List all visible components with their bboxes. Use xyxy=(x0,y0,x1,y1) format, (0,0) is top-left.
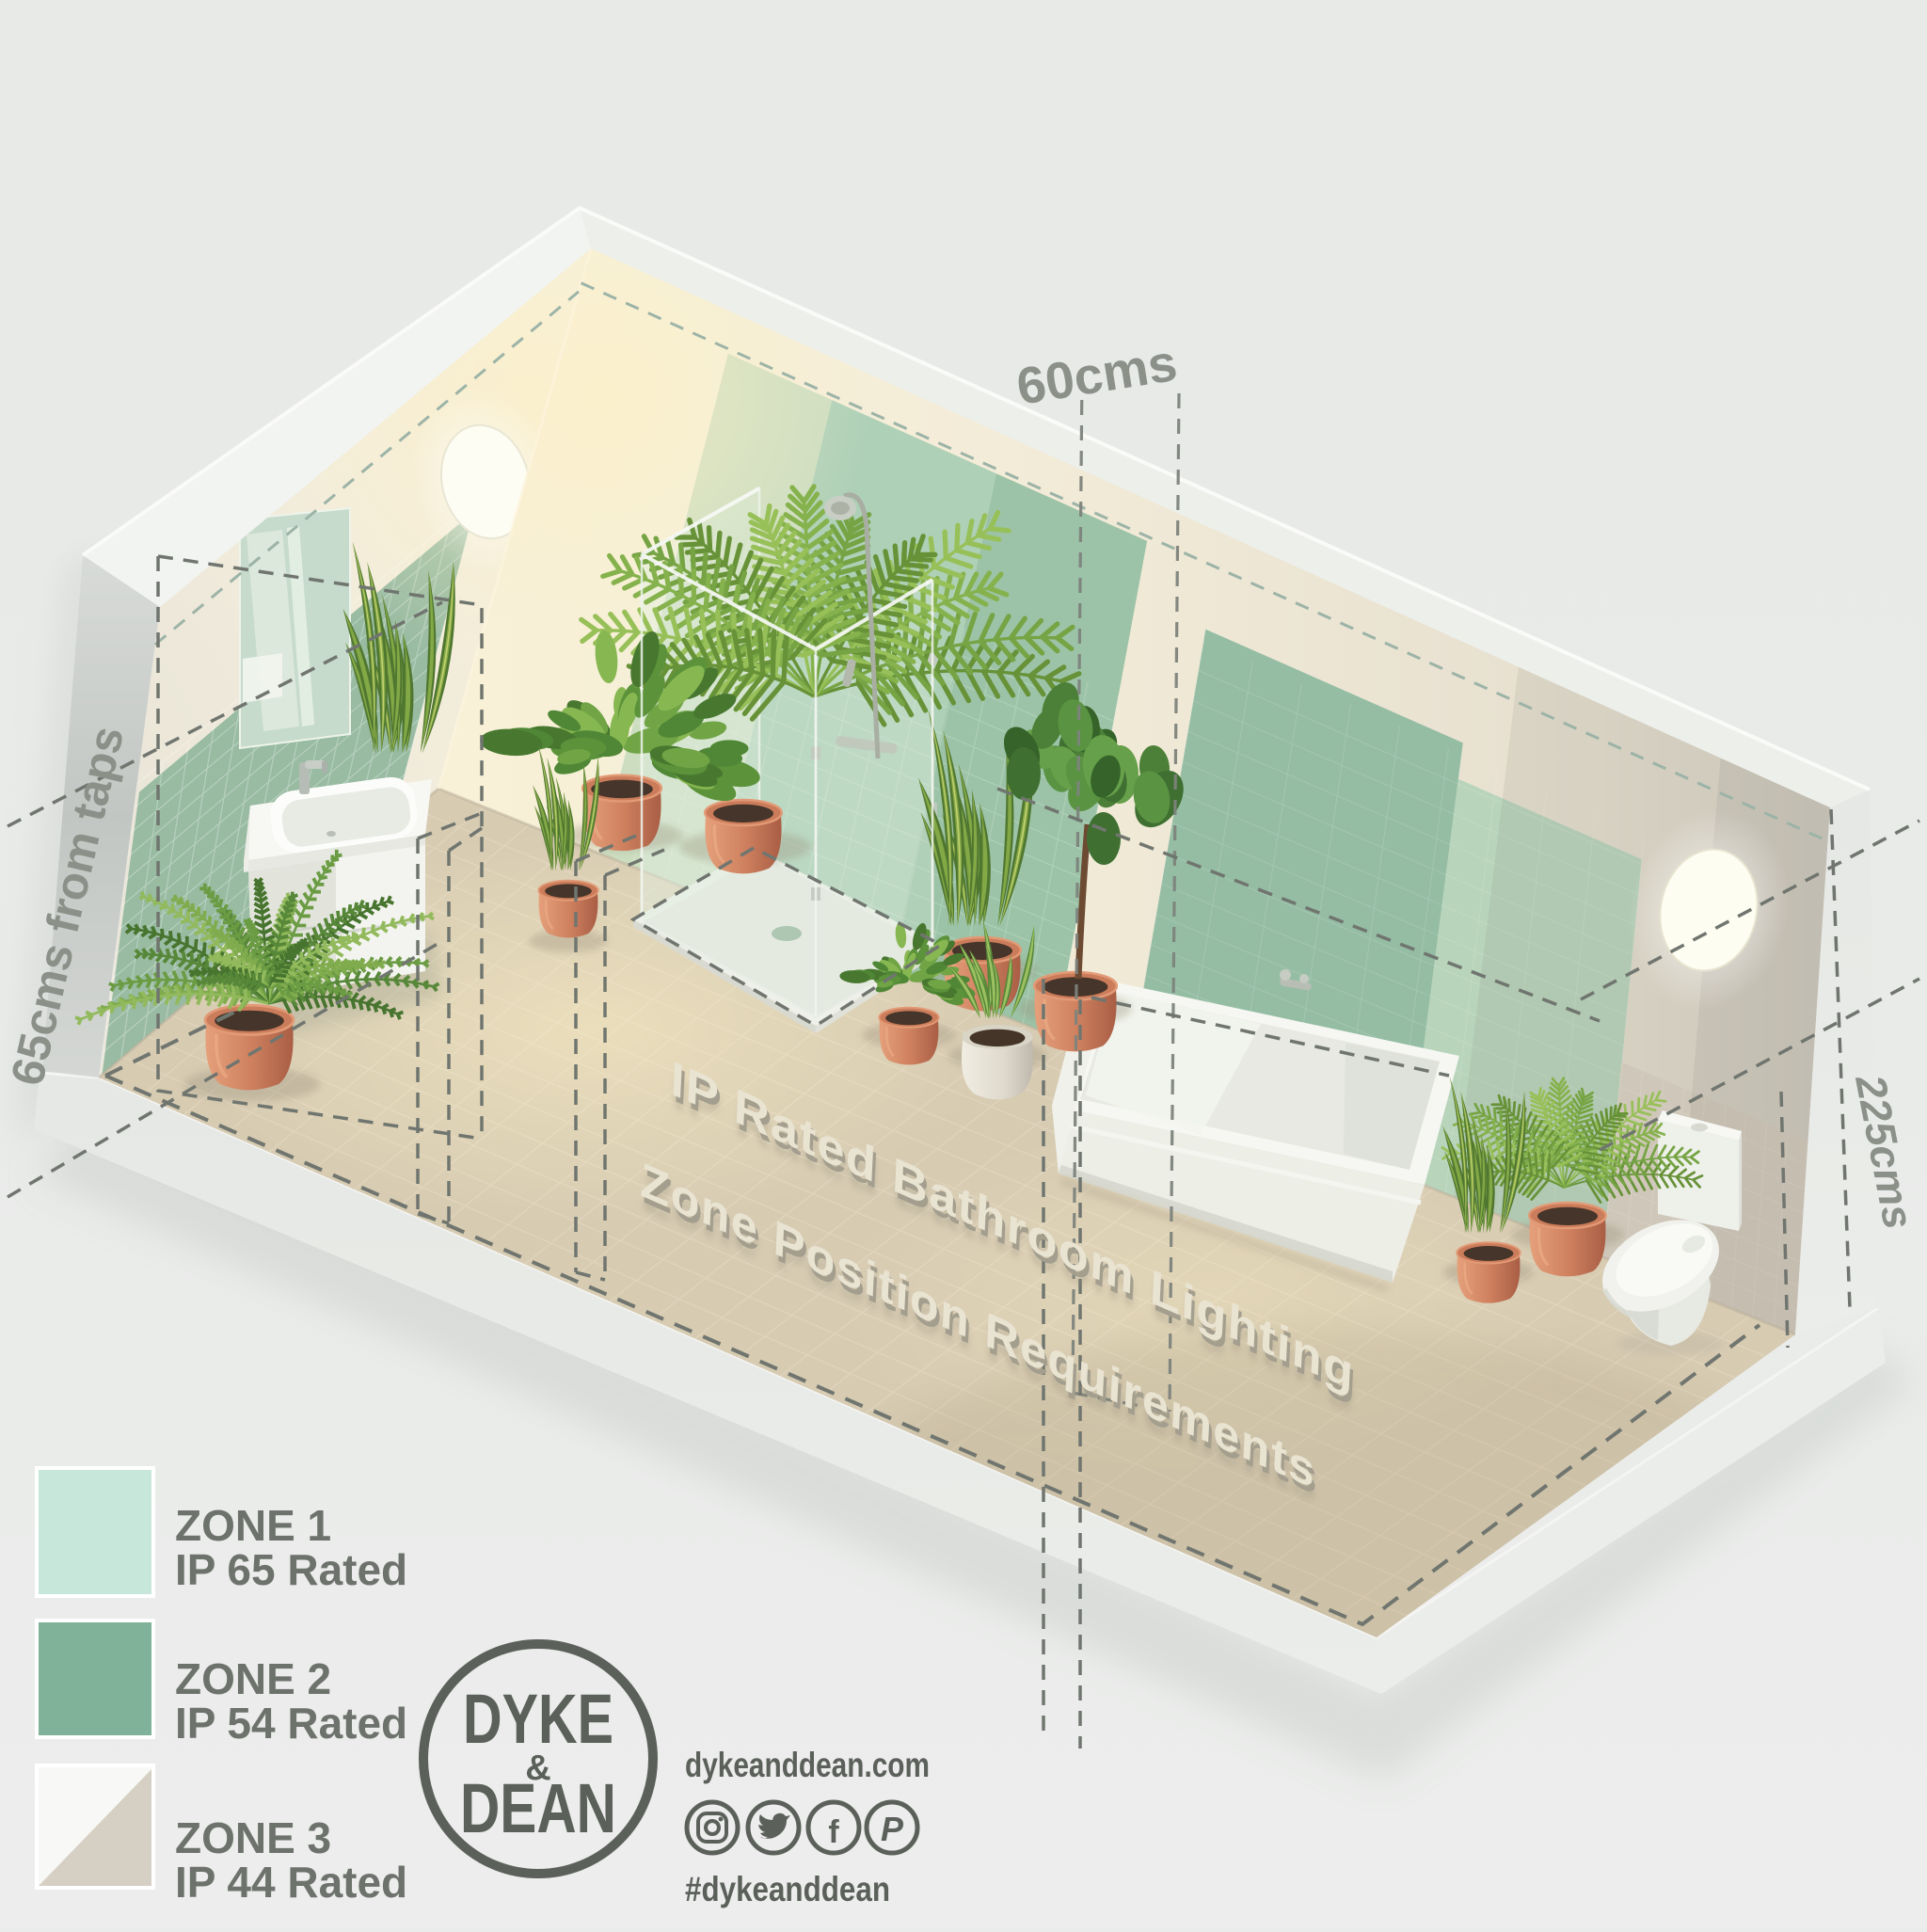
svg-text:dykeanddean.com: dykeanddean.com xyxy=(685,1746,930,1784)
svg-text:ZONE 2: ZONE 2 xyxy=(175,1654,331,1703)
svg-text:IP 44 Rated: IP 44 Rated xyxy=(175,1858,407,1907)
svg-text:DEAN: DEAN xyxy=(460,1769,616,1847)
svg-text:ZONE 1: ZONE 1 xyxy=(175,1501,331,1550)
svg-text:IP 65 Rated: IP 65 Rated xyxy=(175,1545,407,1594)
svg-text:#dykeanddean: #dykeanddean xyxy=(685,1870,890,1908)
svg-text:f: f xyxy=(828,1814,839,1850)
svg-text:DYKE: DYKE xyxy=(463,1680,613,1758)
svg-text:IP 54 Rated: IP 54 Rated xyxy=(175,1699,407,1748)
svg-text:P: P xyxy=(881,1810,904,1848)
svg-text:ZONE 3: ZONE 3 xyxy=(175,1813,331,1862)
